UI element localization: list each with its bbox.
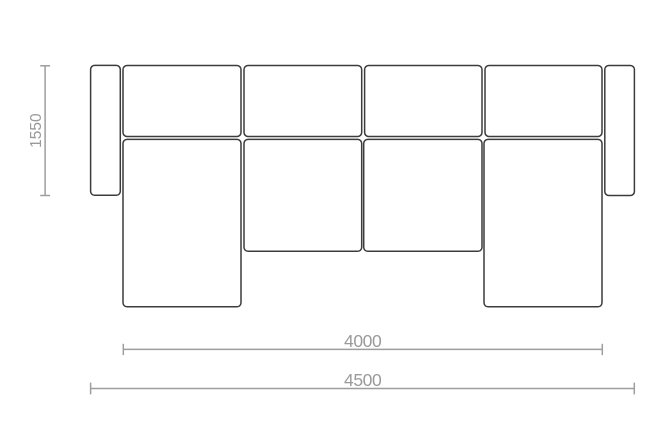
svg-text:1550: 1550 xyxy=(28,113,45,148)
svg-text:4000: 4000 xyxy=(344,331,382,351)
svg-text:4500: 4500 xyxy=(344,370,382,390)
